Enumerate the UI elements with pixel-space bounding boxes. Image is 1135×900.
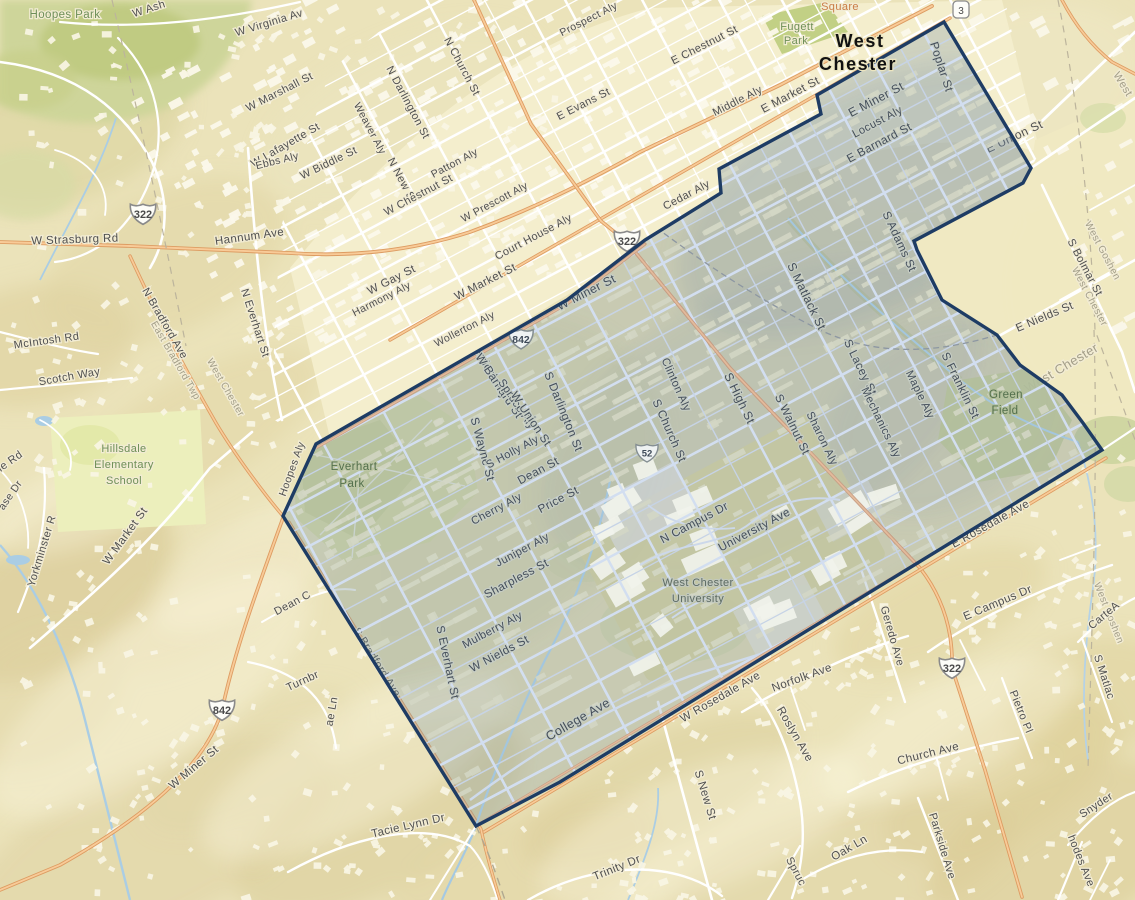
svg-text:West Chester: West Chester <box>662 577 733 589</box>
svg-text:322: 322 <box>943 663 961 675</box>
svg-text:Park: Park <box>784 35 808 47</box>
svg-text:3: 3 <box>958 6 964 17</box>
svg-text:322: 322 <box>618 236 636 248</box>
svg-text:Field: Field <box>992 405 1019 417</box>
svg-text:Square: Square <box>821 1 859 13</box>
svg-text:842: 842 <box>512 335 530 346</box>
svg-text:842: 842 <box>213 705 231 717</box>
svg-text:Chester: Chester <box>819 54 897 74</box>
svg-text:Elementary: Elementary <box>94 459 154 471</box>
svg-text:School: School <box>106 475 142 487</box>
svg-text:Green: Green <box>989 389 1023 401</box>
svg-text:Fugett: Fugett <box>780 21 814 33</box>
svg-text:Hoopes Park: Hoopes Park <box>30 9 101 21</box>
svg-text:322: 322 <box>134 209 152 221</box>
svg-text:Hillsdale: Hillsdale <box>101 443 146 455</box>
svg-text:West: West <box>835 31 884 51</box>
svg-text:Everhart: Everhart <box>331 461 378 473</box>
svg-text:Park: Park <box>339 478 364 490</box>
svg-text:University: University <box>672 593 724 605</box>
svg-text:52: 52 <box>642 449 653 460</box>
